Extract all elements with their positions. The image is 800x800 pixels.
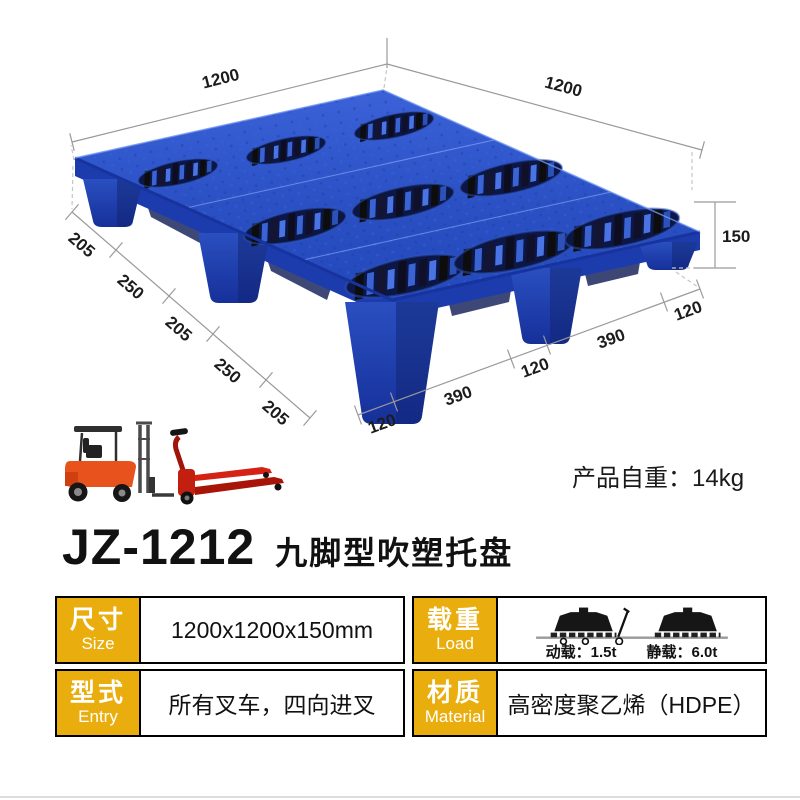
dim-label-left-seg: 205 — [162, 312, 196, 345]
dim-label-bottom-seg: 390 — [442, 382, 475, 410]
spec-header-size-cn: 尺寸 — [70, 606, 126, 634]
pallet-foot-shade — [672, 242, 698, 270]
pallet-illustration — [75, 90, 700, 424]
spec-header-material-en: Material — [425, 707, 485, 726]
dim-label-width-left: 1200 — [200, 65, 241, 93]
dim-label-left-seg: 250 — [211, 354, 245, 387]
spec-block-load: 载重 Load — [412, 596, 767, 664]
static-load-label: 静载：6.0t — [647, 645, 718, 660]
spec-block-entry: 型式 Entry 所有叉车，四向进叉 — [55, 669, 405, 737]
pallet-foot-shade — [550, 268, 582, 344]
spec-header-size-en: Size — [81, 634, 114, 653]
spec-block-size: 尺寸 Size 1200x1200x150mm — [55, 596, 405, 664]
page-bottom-edge — [0, 796, 800, 798]
spec-header-material-cn: 材质 — [427, 679, 483, 707]
pallet-foot-shade — [396, 302, 439, 424]
dim-label-bottom-seg: 390 — [595, 325, 628, 353]
spec-header-material: 材质 Material — [414, 671, 498, 735]
spec-header-entry-cn: 型式 — [70, 679, 126, 707]
product-name: 九脚型吹塑托盘 — [275, 528, 513, 574]
dim-label-left-seg: 205 — [65, 228, 99, 261]
product-model: JZ-1212 — [62, 518, 255, 576]
pallet-jack-photo — [170, 428, 284, 505]
spec-table: 尺寸 Size 1200x1200x150mm 载重 Load — [55, 596, 767, 737]
spec-header-entry-en: Entry — [78, 707, 118, 726]
load-labels: 动载：1.5t 静载：6.0t — [546, 645, 718, 660]
forklift-photo — [65, 423, 174, 502]
spec-header-load: 载重 Load — [414, 598, 498, 662]
dim-label-left-seg: 250 — [114, 270, 148, 303]
spec-header-load-cn: 载重 — [427, 606, 483, 634]
product-title: JZ-1212 九脚型吹塑托盘 — [62, 518, 513, 576]
spec-value-load: 动载：1.5t 静载：6.0t — [498, 598, 765, 662]
spec-value-material: 高密度聚乙烯（HDPE） — [498, 671, 765, 735]
handling-equipment-images — [52, 415, 292, 510]
load-icons — [519, 603, 744, 645]
spec-value-size: 1200x1200x150mm — [141, 598, 403, 662]
spec-block-material: 材质 Material 高密度聚乙烯（HDPE） — [412, 669, 767, 737]
dim-label-width-right: 1200 — [543, 73, 584, 101]
spec-value-entry: 所有叉车，四向进叉 — [141, 671, 403, 735]
spec-header-load-en: Load — [436, 634, 474, 653]
dim-label-height: 150 — [722, 227, 750, 246]
static-load-icon — [655, 607, 721, 634]
dim-label-bottom-seg: 120 — [519, 354, 552, 382]
spec-header-size: 尺寸 Size — [57, 598, 141, 662]
dynamic-load-icon — [551, 607, 630, 644]
product-weight-label: 产品自重：14kg — [572, 458, 744, 493]
product-spec-page: 1200 1200 150 205 250 205 250 205 120 39… — [0, 0, 800, 800]
spec-header-entry: 型式 Entry — [57, 671, 141, 735]
dynamic-load-label: 动载：1.5t — [546, 645, 617, 660]
dim-label-bottom-seg: 120 — [672, 297, 705, 325]
